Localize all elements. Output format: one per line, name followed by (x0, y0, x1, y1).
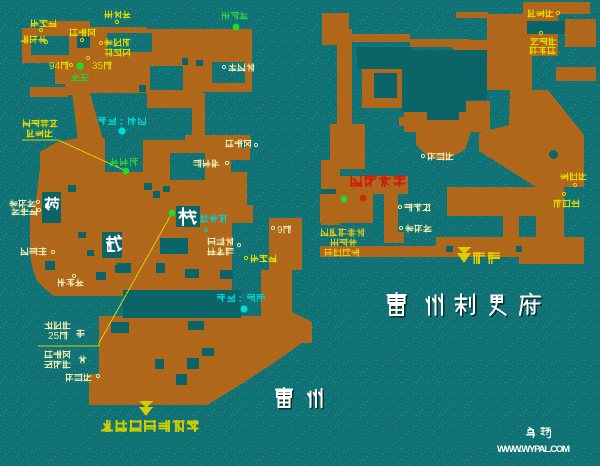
svg-text:WWW.WYPAL.COM: WWW.WYPAL.COM (497, 444, 570, 455)
svg-text:5: 5 (54, 331, 60, 342)
svg-text:9: 9 (277, 225, 283, 236)
svg-text:4: 4 (55, 61, 61, 72)
svg-text:5: 5 (98, 61, 104, 72)
